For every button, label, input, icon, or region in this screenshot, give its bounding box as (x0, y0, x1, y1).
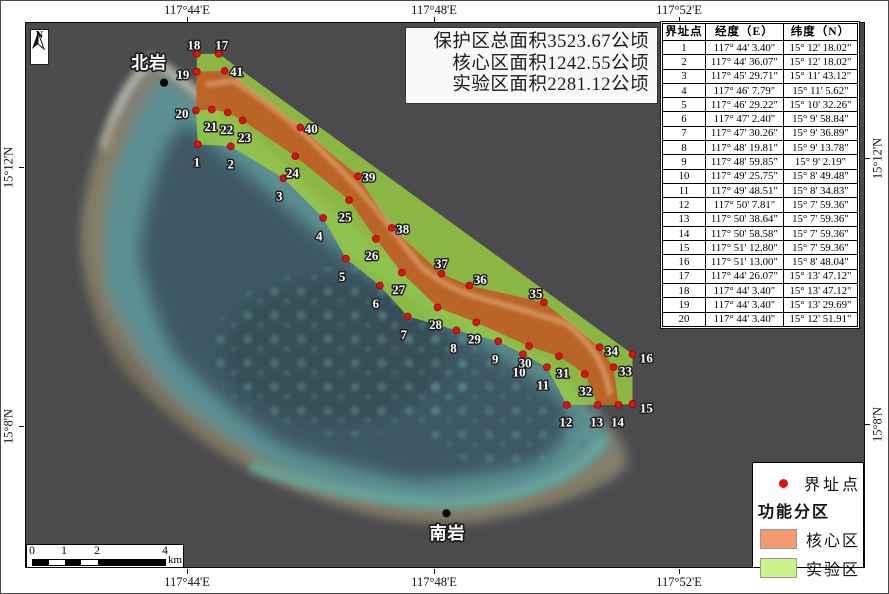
axis-tick-right (865, 158, 870, 159)
area-statistics-line: 实验区面积2281.12公顷 (406, 75, 649, 97)
table-cell: 15° 7' 59.36" (783, 241, 857, 255)
table-cell: 13 (663, 212, 706, 226)
boundary-point-dot (192, 107, 199, 114)
axis-tick-top (434, 17, 435, 22)
table-cell: 8 (663, 141, 706, 155)
boundary-point-dot (594, 401, 601, 408)
scale-bar-number: 4 (162, 545, 168, 557)
boundary-point-number: 8 (450, 341, 457, 356)
boundary-point-number: 18 (187, 37, 200, 52)
table-cell: 6 (663, 112, 706, 126)
table-cell: 117° 49' 25.75" (705, 169, 783, 183)
boundary-point-number: 33 (619, 364, 632, 379)
table-cell: 15° 8' 48.04" (783, 255, 857, 269)
table-cell: 11 (663, 183, 706, 197)
table-cell: 117° 49' 48.51" (705, 183, 783, 197)
table-cell: 117° 50' 58.58" (705, 226, 783, 240)
boundary-point-number: 17 (215, 37, 228, 52)
boundary-point-dot (372, 235, 379, 242)
compass-arrow-icon (31, 31, 45, 51)
north-arrow: N (30, 29, 49, 65)
scale-bar-rule (32, 559, 166, 566)
place-label: 北岩 (131, 53, 167, 73)
table-cell: 12 (663, 198, 706, 212)
area-statistics-line: 核心区面积1242.55公顷 (406, 54, 649, 76)
table-row: 5117° 46' 29.22"15° 10' 32.26" (663, 98, 858, 112)
table-cell: 15° 12' 51.91" (783, 312, 857, 326)
table-cell: 117° 44' 36.07" (705, 55, 783, 69)
scale-bar-number: 1 (61, 545, 67, 557)
boundary-point-dot (320, 214, 327, 221)
table-cell: 4 (663, 83, 706, 97)
boundary-point-number: 40 (305, 121, 318, 136)
table-row: 9117° 48' 59.85"15° 9' 2.19" (663, 155, 858, 169)
boundary-point-number: 32 (579, 383, 592, 398)
table-cell: 14 (663, 226, 706, 240)
axis-tick-left (19, 167, 24, 168)
axis-label-top: 117°52'E (656, 3, 702, 18)
table-row: 19117° 44' 3.40"15° 13' 29.69" (663, 298, 858, 312)
table-cell: 117° 51' 12.80" (705, 241, 783, 255)
table-cell: 15° 7' 59.36" (783, 212, 857, 226)
axis-label-top: 117°48'E (411, 3, 457, 18)
table-cell: 117° 48' 19.81" (705, 141, 783, 155)
table-cell: 117° 47' 2.40" (705, 112, 783, 126)
map-figure: 北岩南岩 12345678910111213141516171819202122… (0, 0, 889, 594)
boundary-point-number: 3 (276, 189, 283, 204)
boundary-point-number: 9 (492, 352, 498, 367)
boundary-point-number: 41 (230, 64, 243, 79)
boundary-point-number: 5 (339, 269, 345, 284)
table-cell: 16 (663, 255, 706, 269)
table-cell: 3 (663, 69, 706, 83)
table-cell: 17 (663, 269, 706, 283)
table-cell: 117° 46' 29.22" (705, 98, 783, 112)
axis-label-bottom: 117°48'E (411, 575, 457, 590)
table-row: 11117° 49' 48.51"15° 8' 34.83" (663, 183, 858, 197)
boundary-point-dot (193, 68, 200, 75)
table-cell: 117° 44' 26.07" (705, 269, 783, 283)
table-cell: 1 (663, 41, 706, 55)
boundary-point-number: 22 (220, 122, 233, 137)
boundary-point-number: 11 (537, 377, 549, 392)
area-statistics-line: 保护区总面积3523.67公顷 (406, 32, 649, 54)
scale-bar-segment (98, 560, 166, 565)
boundary-point-number: 13 (590, 414, 603, 429)
table-cell: 15° 13' 47.12" (783, 269, 857, 283)
boundary-point-dot (563, 401, 570, 408)
boundary-point-dot (388, 224, 395, 231)
boundary-point-number: 7 (400, 327, 407, 342)
table-cell: 15° 7' 59.36" (783, 198, 857, 212)
table-cell: 5 (663, 98, 706, 112)
legend-boundary-point-row: 界址点 (753, 471, 863, 495)
boundary-point-number: 26 (365, 248, 378, 263)
boundary-point-dot (438, 270, 445, 277)
boundary-point-number: 25 (339, 209, 352, 224)
boundary-point-dot (194, 141, 201, 148)
axis-tick-top (187, 17, 188, 22)
boundary-point-dot (239, 117, 246, 124)
table-cell: 15° 12' 18.02" (783, 41, 857, 55)
table-cell: 15° 12' 18.02" (783, 55, 857, 69)
boundary-point-number: 16 (640, 351, 653, 366)
table-cell: 117° 45' 29.71" (705, 69, 783, 83)
legend-swatch (760, 558, 797, 578)
axis-tick-bottom (679, 569, 680, 574)
boundary-point-dot (629, 351, 636, 358)
scale-bar-unit: km (168, 554, 182, 566)
table-row: 8117° 48' 19.81"15° 9' 13.78" (663, 141, 858, 155)
table-row: 13117° 50' 38.64"15° 7' 59.36" (663, 212, 858, 226)
boundary-point-dot (404, 313, 411, 320)
table-cell: 7 (663, 126, 706, 140)
boundary-point-number: 36 (474, 272, 487, 287)
boundary-point-dot (227, 143, 234, 150)
table-cell: 117° 47' 30.26" (705, 126, 783, 140)
area-statistics-box: 保护区总面积3523.67公顷核心区面积1242.55公顷实验区面积2281.1… (405, 27, 658, 104)
boundary-point-number: 28 (429, 317, 442, 332)
table-row: 14117° 50' 58.58"15° 7' 59.36" (663, 226, 858, 240)
boundary-point-dot (526, 343, 533, 350)
boundary-point-dot (221, 67, 228, 74)
boundary-point-number: 31 (556, 366, 569, 381)
boundary-point-dot (224, 109, 231, 116)
boundary-point-dot (346, 197, 353, 204)
boundary-point-number: 30 (519, 356, 532, 371)
table-cell: 15° 8' 34.83" (783, 183, 857, 197)
legend-boundary-point-label: 界址点 (804, 471, 861, 495)
boundary-point-dot (581, 371, 588, 378)
boundary-point-dot (297, 124, 304, 131)
table-cell: 15° 9' 13.78" (783, 141, 857, 155)
table-row: 7117° 47' 30.26"15° 9' 36.89" (663, 126, 858, 140)
table-cell: 117° 51' 13.00" (705, 255, 783, 269)
boundary-point-dot (208, 106, 215, 113)
table-row: 1117° 44' 3.40"15° 12' 18.02" (663, 41, 858, 55)
table-cell: 15° 11' 5.62" (783, 83, 857, 97)
axis-tick-bottom (434, 569, 435, 574)
scale-bar-number: 0 (29, 545, 35, 557)
boundary-point-dot (453, 327, 460, 334)
axis-label-bottom: 117°44'E (164, 575, 210, 590)
boundary-point-dot (495, 338, 502, 345)
table-cell: 117° 50' 7.81" (705, 198, 783, 212)
table-cell: 117° 46' 7.79" (705, 83, 783, 97)
boundary-point-number: 34 (605, 344, 618, 359)
boundary-point-icon (779, 479, 788, 488)
boundary-point-number: 37 (435, 256, 448, 271)
axis-tick-left (19, 426, 24, 427)
boundary-point-number: 2 (227, 157, 233, 172)
table-cell: 117° 44' 3.40" (705, 298, 783, 312)
legend-swatch (760, 529, 797, 549)
scale-bar-segment (65, 560, 81, 565)
table-row: 17117° 44' 26.07"15° 13' 47.12" (663, 269, 858, 283)
table-cell: 117° 50' 38.64" (705, 212, 783, 226)
boundary-point-dot (376, 282, 383, 289)
boundary-point-number: 6 (373, 296, 380, 311)
boundary-point-number: 20 (175, 106, 188, 121)
boundary-point-number: 39 (362, 170, 375, 185)
boundary-point-number: 4 (316, 228, 323, 243)
place-dot (160, 78, 168, 86)
boundary-point-number: 12 (559, 414, 572, 429)
boundary-point-dot (354, 173, 361, 180)
coordinate-table: 界址点经度（E）纬度（N） 1117° 44' 3.40"15° 12' 18.… (662, 23, 858, 327)
boundary-point-number: 23 (238, 130, 251, 145)
table-cell: 15° 7' 59.36" (783, 226, 857, 240)
table-cell: 15° 10' 32.26" (783, 98, 857, 112)
boundary-point-number: 19 (176, 67, 189, 82)
satellite-atoll-art (83, 58, 626, 522)
legend-items: 核心区实验区 (753, 527, 863, 580)
table-row: 18117° 44' 3.40"15° 13' 47.12" (663, 284, 858, 298)
legend-group-title: 功能分区 (758, 498, 863, 522)
table-cell: 117° 44' 3.40" (705, 41, 783, 55)
table-row: 4117° 46' 7.79"15° 11' 5.62" (663, 83, 858, 97)
legend-item: 实验区 (760, 556, 863, 580)
table-row: 15117° 51' 12.80"15° 7' 59.36" (663, 241, 858, 255)
boundary-point-number: 14 (611, 414, 624, 429)
axis-tick-right (865, 424, 870, 425)
boundary-point-dot (610, 364, 617, 371)
table-row: 20117° 44' 3.40"15° 12' 51.91" (663, 312, 858, 326)
table-row: 10117° 49' 25.75"15° 8' 49.48" (663, 169, 858, 183)
table-cell: 19 (663, 298, 706, 312)
table-cell: 9 (663, 155, 706, 169)
table-cell: 15° 9' 58.84" (783, 112, 857, 126)
axis-label-right: 15°8'N (871, 385, 886, 465)
axis-label-right: 15°12'N (871, 119, 886, 199)
table-cell: 15° 13' 47.12" (783, 284, 857, 298)
boundary-point-number: 35 (530, 286, 543, 301)
table-header-row: 界址点经度（E）纬度（N） (663, 24, 858, 41)
table-cell: 117° 48' 59.85" (705, 155, 783, 169)
table-cell: 10 (663, 169, 706, 183)
legend-item-label: 核心区 (806, 527, 860, 551)
scale-bar-number: 2 (94, 545, 100, 557)
table-cell: 117° 44' 3.40" (705, 284, 783, 298)
table-cell: 18 (663, 284, 706, 298)
boundary-point-number: 21 (204, 119, 217, 134)
boundary-point-dot (466, 282, 473, 289)
axis-label-top: 117°44'E (164, 3, 210, 18)
table-cell: 117° 44' 3.40" (705, 312, 783, 326)
boundary-point-dot (343, 255, 350, 262)
legend-item-label: 实验区 (806, 556, 860, 580)
legend: 界址点 功能分区 核心区实验区 (752, 462, 864, 568)
boundary-point-dot (398, 269, 405, 276)
table-row: 12117° 50' 7.81"15° 7' 59.36" (663, 198, 858, 212)
legend-item: 核心区 (760, 527, 863, 551)
table-cell: 20 (663, 312, 706, 326)
place-dot (442, 509, 450, 517)
boundary-point-number: 15 (640, 400, 653, 415)
boundary-point-number: 29 (468, 332, 481, 347)
table-header-cell: 经度（E） (705, 24, 783, 41)
axis-label-bottom: 117°52'E (656, 575, 702, 590)
boundary-point-number: 38 (396, 221, 409, 236)
table-row: 3117° 45' 29.71"15° 11' 43.12" (663, 69, 858, 83)
axis-tick-bottom (187, 569, 188, 574)
table-cell: 15° 8' 49.48" (783, 169, 857, 183)
axis-label-left: 15°8'N (2, 387, 17, 467)
table-cell: 15° 13' 29.69" (783, 298, 857, 312)
scale-bar-segment (33, 560, 49, 565)
table-cell: 15° 11' 43.12" (783, 69, 857, 83)
boundary-point-dot (615, 401, 622, 408)
table-header-cell: 纬度（N） (783, 24, 857, 41)
boundary-point-dot (543, 364, 550, 371)
boundary-point-number: 27 (392, 282, 405, 297)
place-label: 南岩 (430, 523, 466, 543)
table-row: 16117° 51' 13.00"15° 8' 48.04" (663, 255, 858, 269)
table-cell: 15 (663, 241, 706, 255)
boundary-point-dot (292, 153, 299, 160)
table-row: 2117° 44' 36.07"15° 12' 18.02" (663, 55, 858, 69)
coordinate-table-box: 界址点经度（E）纬度（N） 1117° 44' 3.40"15° 12' 18.… (660, 21, 860, 329)
table-cell: 15° 9' 36.89" (783, 126, 857, 140)
scale-bar: km 0124 (26, 544, 184, 568)
boundary-point-dot (596, 344, 603, 351)
boundary-point-dot (555, 353, 562, 360)
table-cell: 2 (663, 55, 706, 69)
boundary-point-number: 1 (194, 155, 200, 170)
boundary-point-dot (629, 400, 636, 407)
axis-label-left: 15°12'N (2, 128, 17, 208)
boundary-point-dot (473, 319, 480, 326)
table-header-cell: 界址点 (663, 24, 706, 41)
table-cell: 15° 9' 2.19" (783, 155, 857, 169)
table-row: 6117° 47' 2.40"15° 9' 58.84" (663, 112, 858, 126)
boundary-point-number: 24 (286, 166, 299, 181)
boundary-point-dot (434, 304, 441, 311)
